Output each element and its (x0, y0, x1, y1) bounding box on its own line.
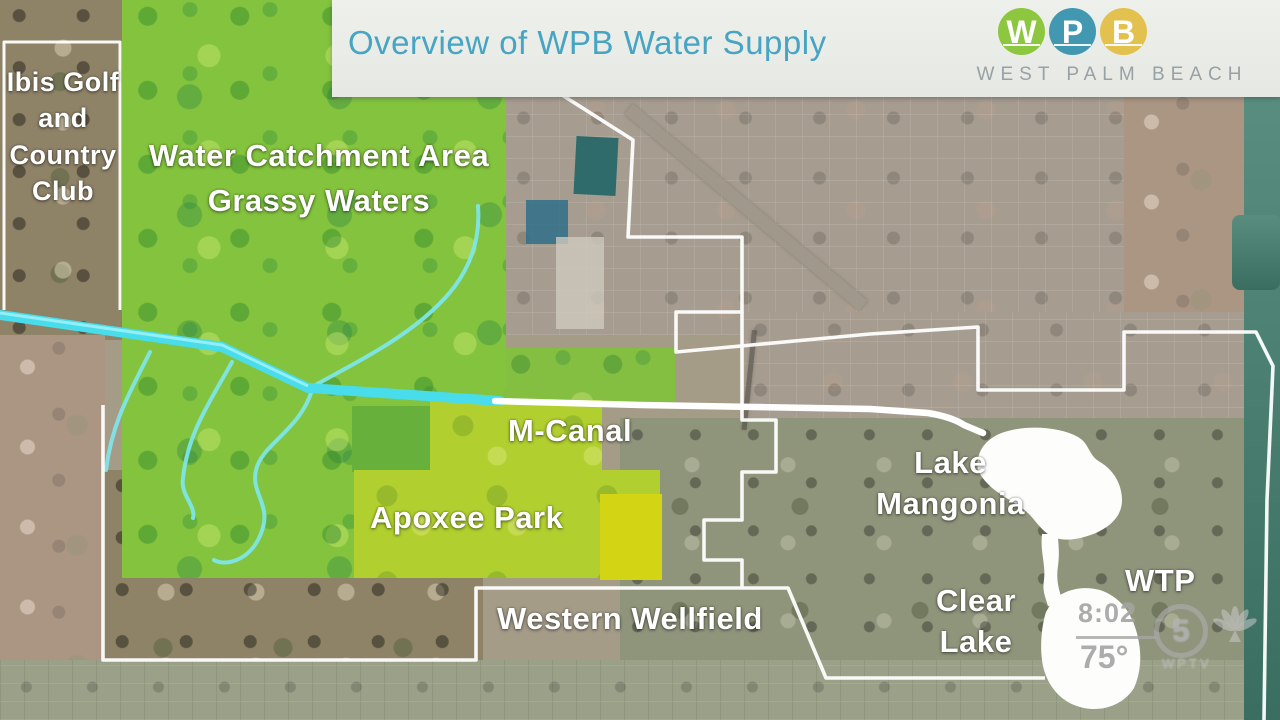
nbc-peacock-icon (1213, 604, 1257, 644)
label-m-canal: M-Canal (508, 411, 632, 452)
news-map-screenshot: Ibis Golf and Country Club Water Catchme… (0, 0, 1280, 720)
label-water-catchment: Water Catchment Area Grassy Waters (124, 134, 514, 224)
logo-letter-b: B (1112, 16, 1135, 48)
station-bug: 8:02 75° 5 WPTV (1050, 592, 1260, 710)
logo-underline (1054, 44, 1091, 46)
logo-underline (1003, 44, 1040, 46)
page-title: Overview of WPB Water Supply (348, 24, 827, 62)
label-lake-mangonia: Lake Mangonia (853, 443, 1048, 525)
logo-letter-p: P (1062, 16, 1083, 48)
logo-letter-w: W (1006, 16, 1036, 48)
brand-name: WEST PALM BEACH (962, 64, 1262, 86)
logo-circle-w: W (998, 8, 1045, 55)
wpb-logo-circles: W P B (998, 8, 1147, 55)
logo-underline (1105, 44, 1142, 46)
station-callsign: WPTV (1162, 656, 1212, 671)
header-band: Overview of WPB Water Supply W P B WEST … (332, 0, 1280, 97)
bug-temperature: 75° (1080, 639, 1128, 676)
channel-5-icon: 5 (1154, 604, 1208, 658)
logo-circle-b: B (1100, 8, 1147, 55)
label-clear-lake: Clear Lake (922, 581, 1030, 663)
channel-number: 5 (1172, 613, 1189, 649)
label-ibis-golf: Ibis Golf and Country Club (2, 64, 124, 210)
label-apoxee-park: Apoxee Park (370, 498, 563, 539)
wpb-logo: W P B WEST PALM BEACH (962, 4, 1262, 96)
bug-time: 8:02 (1078, 598, 1136, 629)
label-western-wellfield: Western Wellfield (497, 599, 763, 640)
logo-circle-p: P (1049, 8, 1096, 55)
